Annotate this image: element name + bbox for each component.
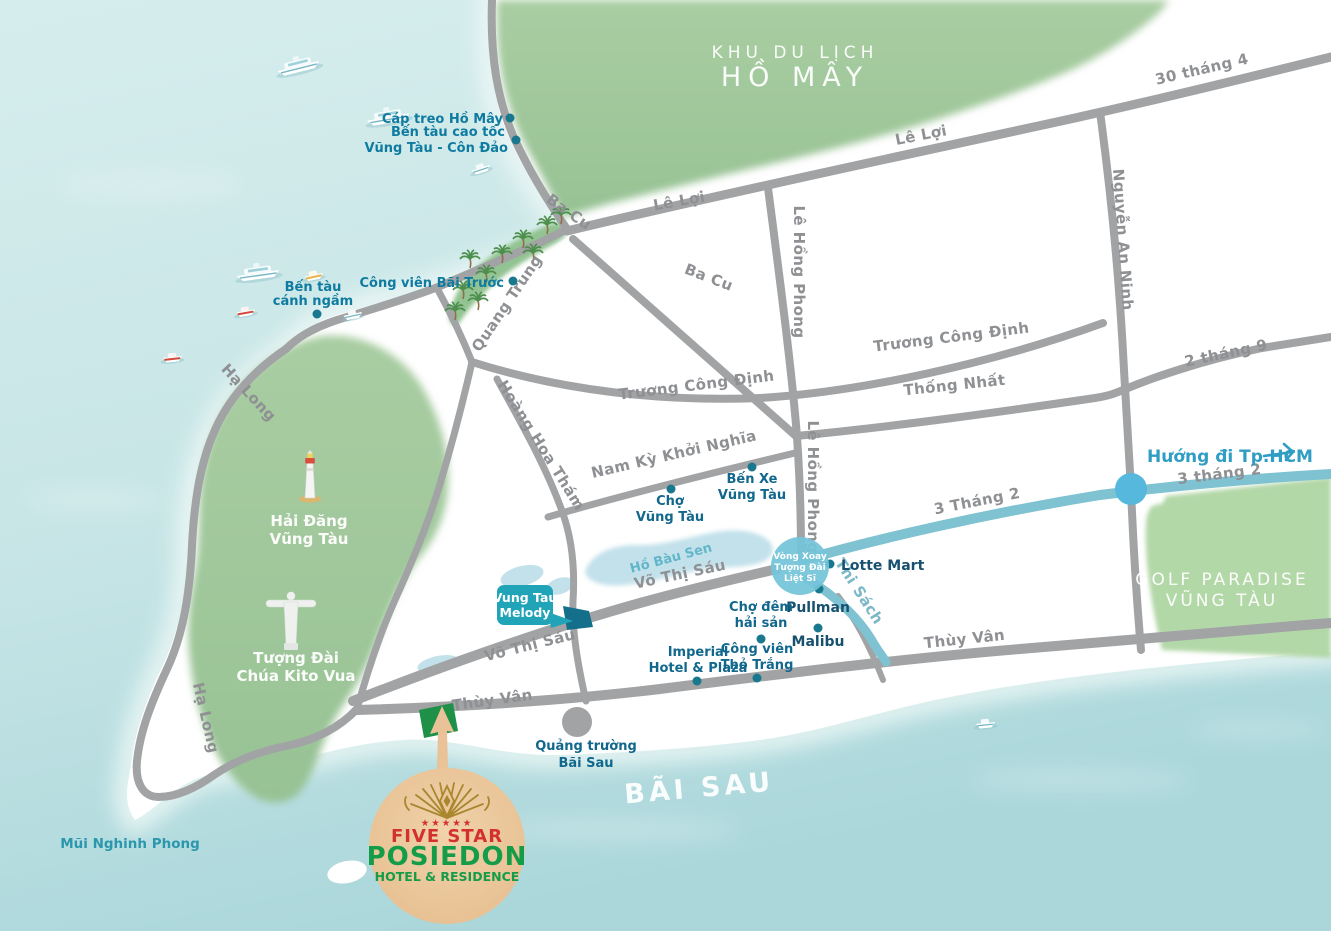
- cho-vung-tau-label-2: Vũng Tàu: [636, 510, 704, 525]
- road-label-le-hong-phong-2: Lê Hồng Phong: [804, 420, 823, 553]
- golf-paradise-label: GOLF PARADISE: [1135, 570, 1308, 590]
- ben-tau-canh-ngam-label-1: Bến tàu: [285, 280, 342, 295]
- cho-vung-tau-label-1: Chợ: [656, 494, 685, 509]
- cho-dem-label-2: hải sản: [735, 616, 788, 631]
- khu-du-lich-label: KHU DU LỊCH: [712, 43, 879, 63]
- hai-dang-label-2: Vũng Tàu: [270, 530, 349, 548]
- poi-dot-ben-tau-cao-toc: [512, 136, 521, 145]
- roundabout-3thang2: [1115, 473, 1147, 505]
- tuong-dai-label-2: Chúa Kito Vua: [236, 667, 355, 685]
- quang-truong-label-1: Quảng trường: [535, 739, 637, 754]
- vong-xoay-label-1: Vòng Xoay: [773, 551, 827, 562]
- ho-may-label: HỒ MÂY: [721, 58, 869, 93]
- ben-tau-cao-toc-label-1: Bến tàu cao tốc: [391, 125, 505, 140]
- bai-sau-plaza: [562, 707, 592, 737]
- quang-truong-label-2: Bãi Sau: [558, 756, 613, 771]
- poi-dot-ben-xe: [748, 463, 757, 472]
- cong-vien-tho-trang-label-1: Công viên: [721, 642, 794, 657]
- poi-dot-malibu: [814, 624, 823, 633]
- ben-xe-label-2: Vũng Tàu: [718, 488, 786, 503]
- pullman-label: Pullman: [786, 600, 850, 616]
- melody-label-1: Vung Tau: [493, 590, 558, 605]
- poi-dot-cong-vien-tho-trang: [753, 674, 762, 683]
- imperial-label-1: Imperial: [668, 645, 729, 660]
- malibu-label: Malibu: [792, 634, 845, 650]
- melody-label-2: Melody: [500, 605, 551, 620]
- logo-brand: POSIEDON: [367, 842, 528, 872]
- ben-xe-label-1: Bến Xe: [727, 472, 778, 487]
- logo-tagline: HOTEL & RESIDENCE: [375, 869, 520, 884]
- lotte-mart-label: Lotte Mart: [841, 558, 925, 574]
- poi-dot-cong-vien-bai-truoc: [509, 277, 518, 286]
- vong-xoay-label-2: Tượng Đài: [774, 563, 825, 573]
- cho-dem-label-1: Chợ đêm: [729, 600, 793, 615]
- poi-dot-cho-vung-tau: [667, 485, 676, 494]
- hai-dang-label-1: Hải Đăng: [270, 512, 347, 530]
- road-label-le-hong-phong-1: Lê Hồng Phong: [790, 205, 809, 338]
- poi-dot-imperial: [693, 677, 702, 686]
- cong-vien-bai-truoc-label: Công viên Bãi Trước: [360, 276, 505, 291]
- tuong-dai-label-1: Tượng Đài: [253, 649, 339, 667]
- poi-dot-cap-treo: [506, 114, 515, 123]
- ben-tau-cao-toc-label-2: Vũng Tàu - Côn Đảo: [364, 141, 508, 156]
- poi-dot-ben-tau-canh-ngam: [313, 310, 322, 319]
- imperial-label-2: Hotel & Plaza: [649, 661, 748, 676]
- vong-xoay-roundabout: Vòng Xoay Tượng Đài Liệt Sĩ: [771, 537, 829, 595]
- vong-xoay-label-3: Liệt Sĩ: [784, 574, 817, 584]
- vung-tau-location-map: Ba Cu Ba Cu Lê Lợi Lê Lợi 30 tháng 4 Ngu…: [0, 0, 1331, 931]
- ben-tau-canh-ngam-label-2: cánh ngầm: [273, 294, 353, 309]
- hcm-direction: Hướng đi Tp.HCM: [1147, 444, 1313, 467]
- golf-vung-tau-label: VŨNG TÀU: [1166, 589, 1279, 611]
- mui-nghinh-phong-label: Mũi Nghinh Phong: [60, 836, 200, 852]
